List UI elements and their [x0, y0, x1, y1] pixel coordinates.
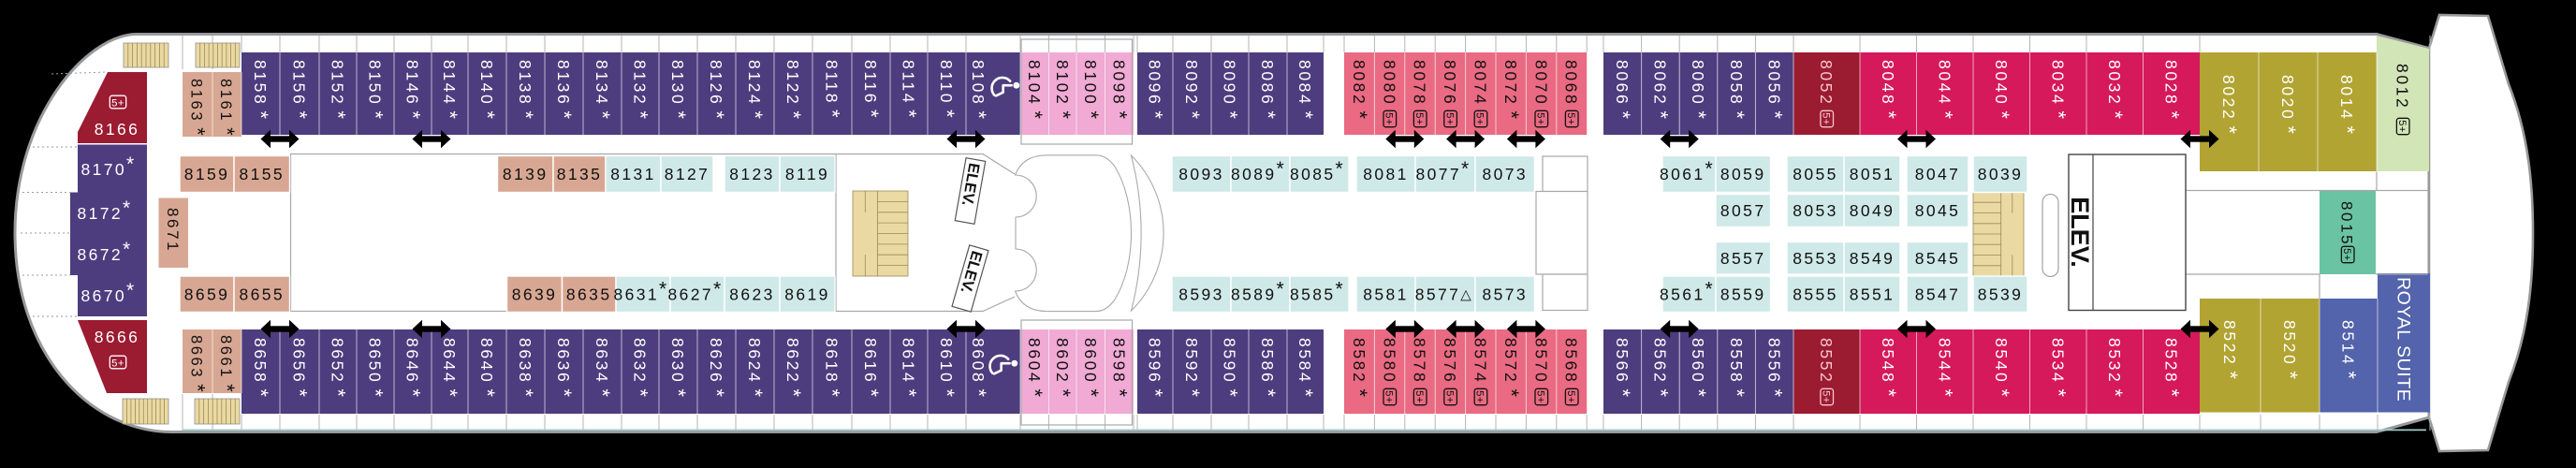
svg-text:8139: 8139 [503, 165, 549, 183]
svg-text:8608*: 8608* [967, 338, 990, 400]
svg-text:8130*: 8130* [666, 60, 690, 122]
svg-text:8092*: 8092* [1180, 60, 1204, 122]
svg-text:8671: 8671 [164, 208, 182, 253]
svg-text:8158*: 8158* [249, 60, 272, 122]
svg-text:8636*: 8636* [552, 338, 576, 400]
svg-text:8658*: 8658* [249, 338, 272, 400]
svg-text:8600*: 8600* [1079, 338, 1103, 400]
svg-text:8059: 8059 [1720, 165, 1766, 183]
svg-text:8639: 8639 [512, 285, 558, 303]
svg-text:8028*: 8028* [2159, 60, 2183, 122]
svg-text:8514*: 8514* [2337, 320, 2361, 382]
svg-text:8056*: 8056* [1763, 60, 1786, 122]
svg-text:8630*: 8630* [666, 338, 690, 400]
svg-text:8090*: 8090* [1219, 60, 1242, 122]
svg-text:8020*: 8020* [2276, 75, 2300, 137]
svg-text:8116*: 8116* [859, 60, 883, 120]
svg-text:8577△: 8577△ [1415, 285, 1473, 303]
svg-text:8598*: 8598* [1108, 338, 1132, 400]
svg-text:8152*: 8152* [327, 60, 350, 122]
svg-text:8619: 8619 [784, 285, 830, 303]
svg-text:8126*: 8126* [705, 60, 728, 122]
svg-text:5+: 5+ [1474, 112, 1486, 125]
svg-text:8659: 8659 [184, 285, 230, 303]
svg-text:8082*: 8082* [1348, 60, 1371, 122]
svg-text:8534*: 8534* [2046, 338, 2070, 400]
svg-text:8655: 8655 [240, 285, 285, 303]
svg-text:8052: 8052 [1817, 60, 1836, 106]
svg-text:8032*: 8032* [2103, 60, 2127, 122]
svg-text:8522*: 8522* [2218, 320, 2242, 382]
svg-text:8062*: 8062* [1649, 60, 1673, 122]
svg-text:8618*: 8618* [821, 338, 844, 400]
svg-text:8138*: 8138* [514, 60, 537, 122]
svg-text:8110*: 8110* [935, 60, 959, 120]
svg-text:8131: 8131 [610, 165, 656, 183]
svg-text:8570: 8570 [1531, 338, 1550, 384]
svg-text:8540*: 8540* [1990, 338, 2013, 400]
svg-text:8635: 8635 [566, 285, 612, 303]
svg-text:8574: 8574 [1471, 338, 1490, 384]
svg-text:8548*: 8548* [1877, 338, 1900, 400]
svg-text:8034*: 8034* [2046, 60, 2070, 122]
svg-text:5+: 5+ [1443, 112, 1455, 125]
svg-text:8066*: 8066* [1611, 60, 1634, 122]
svg-text:8559: 8559 [1720, 285, 1766, 303]
svg-text:5+: 5+ [1383, 112, 1395, 125]
svg-text:8528*: 8528* [2159, 338, 2183, 400]
svg-text:8039: 8039 [1978, 165, 2024, 183]
svg-text:8044*: 8044* [1933, 60, 1956, 122]
svg-text:8102*: 8102* [1051, 60, 1075, 122]
svg-text:5+: 5+ [1565, 390, 1576, 403]
svg-text:8055: 8055 [1793, 165, 1838, 183]
svg-text:5+: 5+ [1565, 112, 1576, 125]
svg-text:8122*: 8122* [782, 60, 805, 122]
svg-text:8118*: 8118* [821, 60, 844, 120]
svg-text:5+: 5+ [1383, 390, 1395, 403]
svg-text:8156*: 8156* [288, 60, 312, 122]
svg-text:8624*: 8624* [743, 338, 767, 400]
svg-text:8568: 8568 [1562, 338, 1581, 384]
svg-text:8622*: 8622* [782, 338, 805, 400]
svg-text:8073: 8073 [1483, 165, 1529, 183]
svg-text:8135: 8135 [557, 165, 603, 183]
svg-text:8144*: 8144* [438, 60, 461, 122]
svg-text:8581: 8581 [1363, 285, 1409, 303]
svg-text:8596*: 8596* [1144, 338, 1167, 400]
svg-text:8547: 8547 [1915, 285, 1961, 303]
svg-text:8015: 8015 [2338, 201, 2356, 246]
svg-text:8634*: 8634* [591, 338, 614, 400]
svg-text:8640*: 8640* [476, 338, 499, 400]
svg-text:8604*: 8604* [1023, 338, 1046, 400]
svg-text:8532*: 8532* [2103, 338, 2127, 400]
svg-text:8556*: 8556* [1763, 338, 1786, 400]
svg-text:8557: 8557 [1720, 249, 1766, 268]
svg-text:8022*: 8022* [2217, 75, 2241, 137]
svg-text:8123: 8123 [729, 165, 775, 183]
svg-text:8638*: 8638* [514, 338, 537, 400]
svg-text:5+: 5+ [1820, 390, 1831, 403]
svg-text:8646*: 8646* [402, 338, 425, 400]
svg-text:8566*: 8566* [1611, 338, 1634, 400]
svg-text:5+: 5+ [111, 97, 124, 109]
svg-text:8632*: 8632* [629, 338, 652, 400]
svg-text:8558*: 8558* [1725, 338, 1749, 400]
svg-text:8562*: 8562* [1649, 338, 1673, 400]
svg-text:8127: 8127 [665, 165, 710, 183]
svg-text:8014*: 8014* [2335, 75, 2359, 137]
svg-text:8666: 8666 [95, 328, 140, 346]
svg-text:8650*: 8650* [364, 338, 388, 400]
svg-text:8614*: 8614* [898, 338, 921, 400]
svg-text:5+: 5+ [1820, 112, 1831, 125]
svg-text:8580: 8580 [1380, 338, 1398, 384]
svg-text:8520*: 8520* [2278, 320, 2302, 382]
svg-text:8582*: 8582* [1348, 338, 1371, 400]
svg-text:8053: 8053 [1793, 201, 1838, 220]
svg-text:8590*: 8590* [1219, 338, 1242, 400]
svg-text:8586*: 8586* [1256, 338, 1280, 400]
svg-text:8610*: 8610* [935, 338, 959, 400]
svg-text:8068: 8068 [1562, 60, 1581, 106]
svg-text:8098*: 8098* [1108, 60, 1132, 122]
svg-text:8573: 8573 [1483, 285, 1529, 303]
svg-text:5+: 5+ [111, 358, 124, 369]
svg-text:8070: 8070 [1531, 60, 1550, 106]
svg-text:8592*: 8592* [1180, 338, 1204, 400]
svg-text:5+: 5+ [1413, 112, 1425, 125]
svg-text:8626*: 8626* [705, 338, 728, 400]
svg-text:8114*: 8114* [898, 60, 921, 120]
svg-text:8057: 8057 [1720, 201, 1766, 220]
svg-text:8552: 8552 [1817, 338, 1836, 384]
svg-text:8602*: 8602* [1051, 338, 1075, 400]
svg-text:8047: 8047 [1915, 165, 1961, 183]
svg-text:8040*: 8040* [1990, 60, 2013, 122]
svg-text:8539: 8539 [1978, 285, 2024, 303]
svg-text:5+: 5+ [1535, 390, 1546, 403]
svg-text:8159: 8159 [184, 165, 230, 183]
svg-text:8572*: 8572* [1500, 338, 1523, 400]
svg-text:8058*: 8058* [1725, 60, 1749, 122]
svg-text:8134*: 8134* [591, 60, 614, 122]
svg-text:8096*: 8096* [1144, 60, 1167, 122]
svg-text:ELEV.: ELEV. [2066, 197, 2094, 268]
svg-text:8553: 8553 [1793, 249, 1838, 268]
svg-text:5+: 5+ [1413, 390, 1425, 403]
svg-text:8616*: 8616* [859, 338, 883, 400]
svg-text:8150*: 8150* [364, 60, 388, 122]
svg-text:8072*: 8072* [1500, 60, 1523, 122]
svg-text:8593: 8593 [1178, 285, 1224, 303]
svg-text:8045: 8045 [1915, 201, 1961, 220]
svg-text:8555: 8555 [1793, 285, 1838, 303]
svg-text:8093: 8093 [1178, 165, 1224, 183]
svg-text:8084*: 8084* [1294, 60, 1317, 122]
svg-text:8652*: 8652* [327, 338, 350, 400]
svg-text:8078: 8078 [1411, 60, 1429, 106]
svg-text:8012: 8012 [2393, 64, 2412, 110]
svg-text:5+: 5+ [2396, 120, 2408, 133]
svg-text:8140*: 8140* [476, 60, 499, 122]
svg-text:8051: 8051 [1850, 165, 1895, 183]
svg-text:8155: 8155 [240, 165, 285, 183]
svg-text:8644*: 8644* [438, 338, 461, 400]
svg-text:8108*: 8108* [967, 60, 990, 122]
svg-text:8166: 8166 [95, 120, 140, 139]
svg-text:ROYAL SUITE: ROYAL SUITE [2393, 277, 2414, 402]
svg-text:8074: 8074 [1471, 60, 1490, 106]
svg-text:8086*: 8086* [1256, 60, 1280, 122]
svg-text:8081: 8081 [1363, 165, 1409, 183]
svg-text:8124*: 8124* [743, 60, 767, 122]
svg-text:8146*: 8146* [402, 60, 425, 122]
svg-text:8578: 8578 [1411, 338, 1429, 384]
svg-text:8048*: 8048* [1877, 60, 1900, 122]
svg-text:5+: 5+ [1535, 112, 1546, 125]
svg-text:8080: 8080 [1380, 60, 1398, 106]
svg-text:5+: 5+ [1443, 390, 1455, 403]
svg-text:8549: 8549 [1850, 249, 1895, 268]
svg-text:8119: 8119 [785, 165, 829, 183]
svg-text:8623: 8623 [729, 285, 775, 303]
svg-text:8104*: 8104* [1023, 60, 1046, 122]
svg-text:8551: 8551 [1850, 285, 1895, 303]
svg-text:5+: 5+ [2341, 248, 2352, 261]
svg-text:8545: 8545 [1915, 249, 1961, 268]
svg-text:8584*: 8584* [1294, 338, 1317, 400]
svg-text:8576: 8576 [1441, 338, 1459, 384]
svg-text:8060*: 8060* [1687, 60, 1710, 122]
svg-text:8136*: 8136* [552, 60, 576, 122]
svg-text:8560*: 8560* [1687, 338, 1710, 400]
svg-text:8544*: 8544* [1933, 338, 1956, 400]
svg-text:8100*: 8100* [1079, 60, 1103, 122]
svg-text:5+: 5+ [1474, 390, 1486, 403]
svg-text:8076: 8076 [1441, 60, 1459, 106]
svg-text:8049: 8049 [1850, 201, 1895, 220]
svg-text:8656*: 8656* [288, 338, 312, 400]
svg-text:8132*: 8132* [629, 60, 652, 122]
